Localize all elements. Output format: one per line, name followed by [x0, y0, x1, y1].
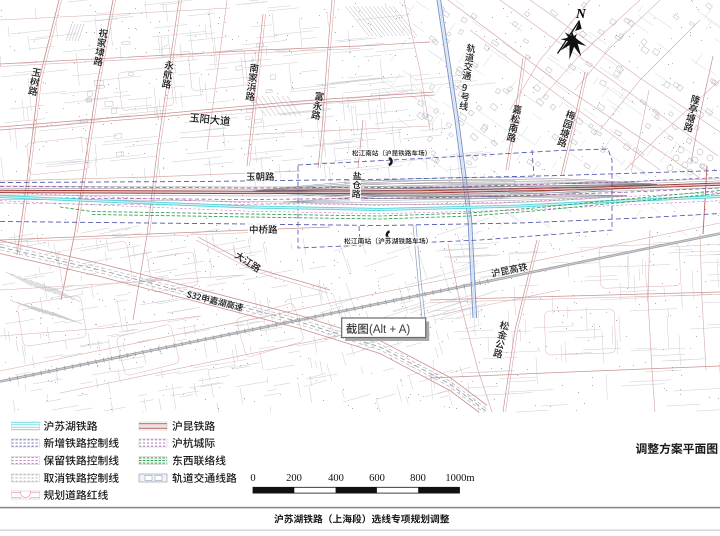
svg-text:1000m: 1000m — [445, 473, 474, 484]
svg-text:800: 800 — [410, 473, 426, 484]
svg-text:(Alt + A): (Alt + A) — [369, 324, 410, 336]
svg-text:200: 200 — [286, 473, 302, 484]
svg-text:400: 400 — [328, 473, 344, 484]
svg-text:0: 0 — [250, 473, 255, 484]
svg-text:N: N — [575, 6, 587, 21]
svg-text:600: 600 — [369, 473, 385, 484]
